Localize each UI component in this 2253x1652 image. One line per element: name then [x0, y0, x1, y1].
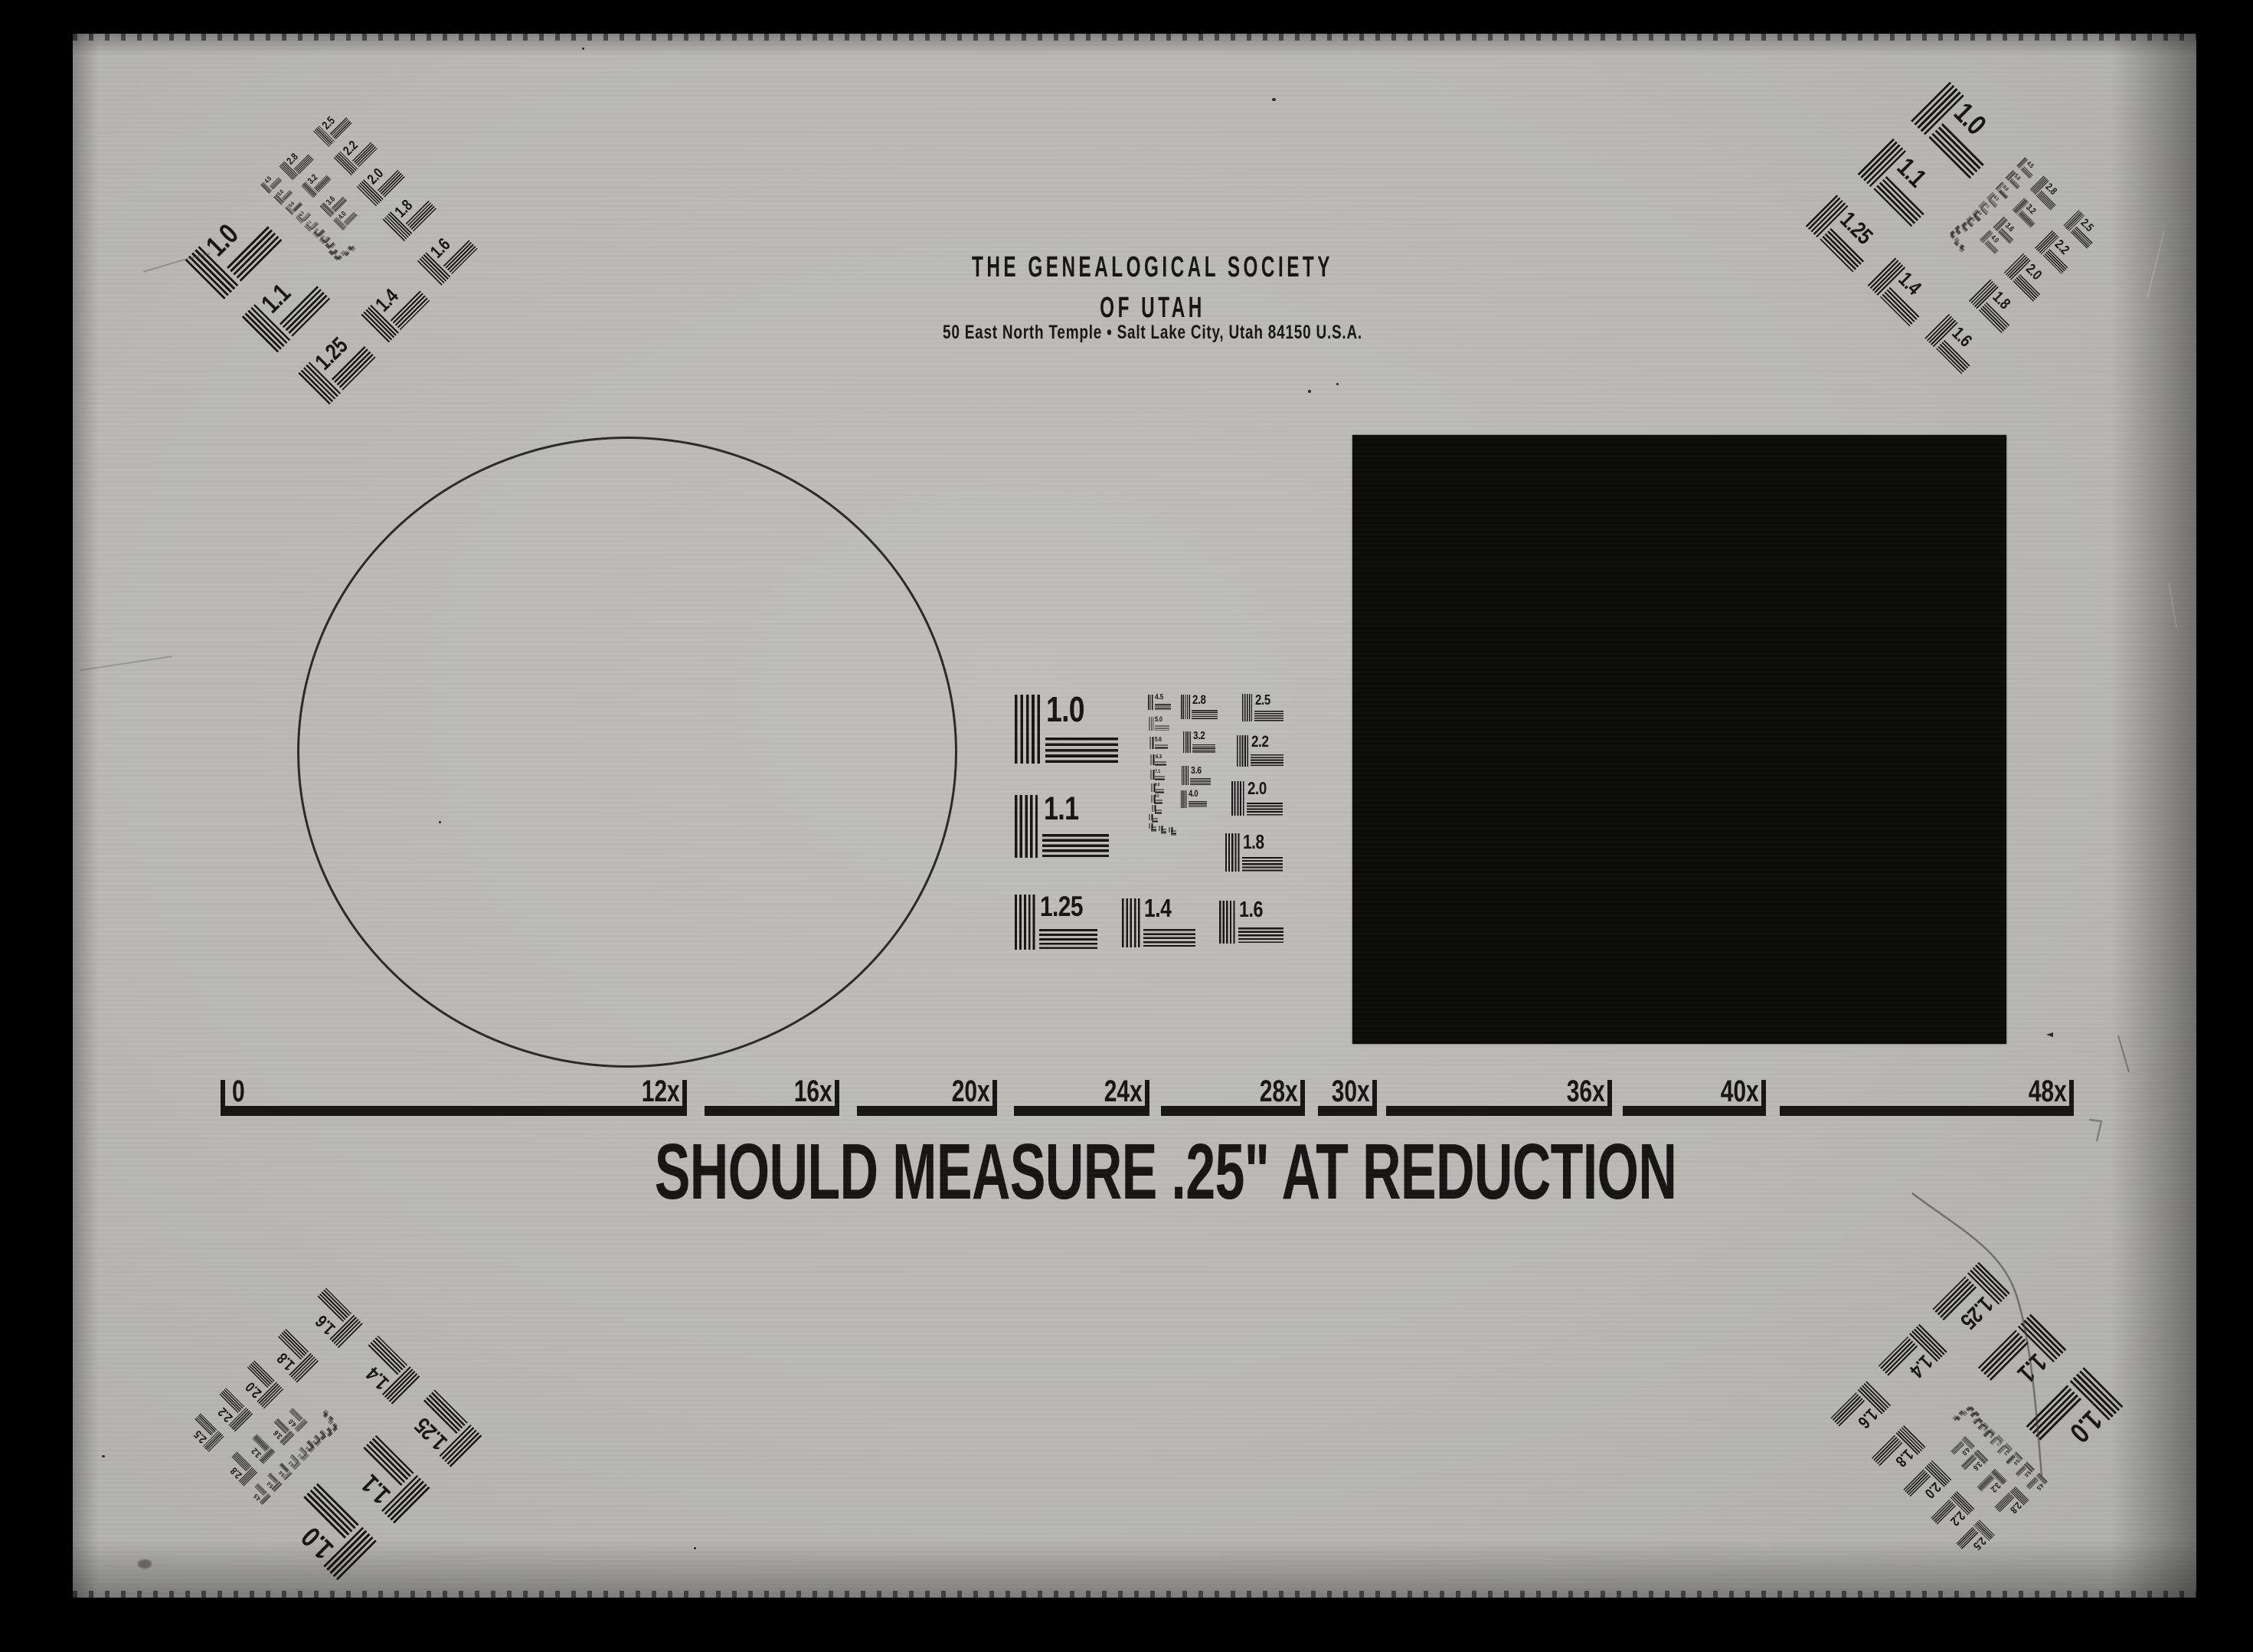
scale-segment-label: 24x: [1028, 1076, 1143, 1107]
scale-segment-tick: [2069, 1080, 2074, 1116]
scale-segment-tick: [682, 1080, 687, 1116]
resolution-value-label: 3.2: [1193, 731, 1205, 742]
horizontal-bars: [1190, 778, 1211, 785]
horizontal-bars: [1954, 229, 1960, 235]
horizontal-bars: [1155, 761, 1166, 766]
horizontal-bars: [1192, 710, 1218, 719]
scanned-test-chart-page: THE GENEALOGICAL SOCIETY OF UTAH 50 East…: [0, 0, 2253, 1652]
organization-title-line2: OF UTAH: [1070, 292, 1234, 325]
horizontal-bars: [1155, 744, 1168, 749]
vertical-bars: [1015, 895, 1035, 950]
scale-segment-label: 12x: [565, 1076, 680, 1107]
horizontal-bars: [350, 246, 356, 252]
vertical-bars: [1231, 781, 1244, 816]
vertical-bars: [1148, 695, 1153, 710]
resolution-value-label: 1.1: [1044, 793, 1078, 826]
focus-test-circle: [297, 437, 957, 1068]
resolution-value-label: 1.4: [1144, 896, 1171, 921]
scale-segment-label: 20x: [875, 1076, 990, 1107]
horizontal-bars: [1155, 776, 1165, 780]
scale-segment-tick: [1607, 1080, 1612, 1116]
dust-speck: [2046, 1032, 2053, 1037]
resolution-test-pattern-top-right: 1.01.11.251.41.61.82.02.22.52.83.23.64.0…: [1786, 59, 2146, 419]
vertical-bars: [1183, 731, 1191, 753]
dust-speck: [582, 47, 584, 50]
scale-segment-label: 40x: [1644, 1076, 1759, 1107]
dust-speck: [1336, 383, 1339, 385]
horizontal-bars: [1242, 857, 1283, 872]
resolution-test-pattern-bottom-right: 1.01.11.251.41.61.82.02.22.52.83.23.64.0…: [1786, 1242, 2146, 1602]
resolution-value-label: 8.0: [1155, 783, 1159, 788]
torn-paper-edge-bottom: [73, 1591, 2196, 1598]
torn-paper-edge-top: [73, 34, 2196, 41]
dust-speck: [439, 821, 441, 823]
dust-speck: [1308, 390, 1311, 393]
vertical-bars: [1122, 898, 1140, 947]
scale-segment-tick: [992, 1080, 997, 1116]
resolution-value-label: 4.5: [1155, 694, 1163, 702]
horizontal-bars: [1143, 929, 1195, 947]
resolution-value-label: 3.6: [1191, 765, 1202, 775]
measurement-caption: SHOULD MEASURE .25" AT REDUCTION: [414, 1132, 1918, 1211]
resolution-value-label: 5.0: [1155, 716, 1162, 723]
scan-frame-bottom: [0, 1598, 2253, 1652]
resolution-value-label: 9.0: [1155, 795, 1159, 799]
horizontal-bars: [329, 242, 336, 249]
horizontal-bars: [1039, 929, 1097, 950]
resolution-value-label: 2.0: [1247, 780, 1267, 797]
resolution-value-label: 7.1: [1155, 770, 1160, 775]
resolution-value-label: 4.0: [1189, 790, 1198, 799]
scan-frame-left: [0, 0, 73, 1652]
resolution-value-label: 2.8: [1192, 694, 1206, 707]
scan-frame-right: [2196, 0, 2253, 1652]
horizontal-bars: [1972, 1418, 1979, 1425]
resolution-test-pattern-bottom-left: 1.01.11.251.41.61.82.02.22.52.83.23.64.0…: [142, 1243, 502, 1603]
smudge: [138, 1559, 152, 1569]
resolution-value-label: 5.6: [1155, 736, 1162, 742]
vertical-bars: [1225, 833, 1240, 872]
vertical-bars: [1015, 795, 1038, 858]
horizontal-bars: [1959, 247, 1965, 253]
horizontal-bars: [344, 250, 350, 257]
scan-frame-top: [0, 0, 2253, 34]
vertical-bars: [1181, 790, 1187, 808]
horizontal-bars: [1961, 226, 1968, 233]
resolution-value-label: 1.6: [1239, 899, 1263, 921]
vertical-bars: [1242, 694, 1252, 721]
scale-segment-tick: [835, 1080, 839, 1116]
horizontal-bars: [1151, 826, 1156, 831]
horizontal-bars: [1042, 834, 1109, 857]
vertical-bars: [1015, 695, 1040, 764]
scale-segment-tick: [1372, 1080, 1377, 1116]
dust-speck: [102, 1455, 105, 1457]
scuff-mark: [2168, 582, 2177, 627]
scale-segment-label: 30x: [1255, 1076, 1370, 1107]
horizontal-bars: [1251, 754, 1283, 766]
horizontal-bars: [1192, 744, 1215, 752]
horizontal-bars: [1171, 830, 1176, 835]
dust-speck: [1272, 98, 1276, 101]
horizontal-bars: [1247, 803, 1283, 816]
resolution-value-label: 1.0: [1046, 692, 1084, 728]
scale-segment-tick: [1145, 1080, 1149, 1116]
vertical-bars: [1149, 737, 1154, 749]
horizontal-bars: [1161, 829, 1166, 833]
horizontal-bars: [1155, 704, 1171, 709]
resolution-test-pattern-top-left: 1.01.11.251.41.61.82.02.22.52.83.23.64.0…: [162, 64, 522, 424]
scale-segment-label: 16x: [718, 1076, 832, 1107]
horizontal-bars: [1155, 810, 1162, 814]
resolution-value-label: 6.3: [1156, 754, 1162, 759]
resolution-value-label: 2.5: [1255, 693, 1270, 708]
horizontal-bars: [1254, 711, 1283, 721]
scuff-mark: [2147, 231, 2165, 298]
horizontal-bars: [1154, 800, 1162, 804]
horizontal-bars: [337, 254, 343, 260]
organization-title-line1: THE GENEALOGICAL SOCIETY: [870, 251, 1434, 284]
scale-segment-tick: [1761, 1080, 1766, 1116]
resolution-value-label: 1.8: [1243, 832, 1264, 852]
vertical-bars: [1181, 695, 1190, 719]
scale-segment-label: 48x: [1952, 1076, 2067, 1107]
organization-address: 50 East North Temple • Salt Lake City, U…: [877, 322, 1429, 344]
scale-segment-label: 36x: [1490, 1076, 1605, 1107]
page-edge-shadow-left: [73, 34, 99, 1598]
horizontal-bars: [1238, 927, 1283, 944]
resolution-value-label: 1.25: [1040, 892, 1083, 921]
horizontal-bars: [1189, 801, 1207, 807]
horizontal-bars: [1155, 725, 1169, 731]
vertical-bars: [1237, 735, 1248, 767]
vertical-bars: [1219, 901, 1235, 944]
horizontal-bars: [1045, 738, 1118, 763]
resolution-value-label: 2.2: [1251, 734, 1269, 750]
scale-origin-label: 0: [232, 1076, 249, 1107]
dust-speck: [694, 1547, 696, 1549]
scale-segment-bar: [223, 1106, 686, 1116]
vertical-bars: [1149, 717, 1154, 731]
resolution-test-pattern-center: 1.01.11.251.41.61.82.02.22.52.83.23.64.0…: [996, 674, 1340, 965]
horizontal-bars: [1155, 789, 1164, 793]
vertical-bars: [1182, 766, 1189, 785]
horizontal-bars: [1152, 818, 1158, 823]
density-reference-patch: [1352, 435, 2006, 1044]
